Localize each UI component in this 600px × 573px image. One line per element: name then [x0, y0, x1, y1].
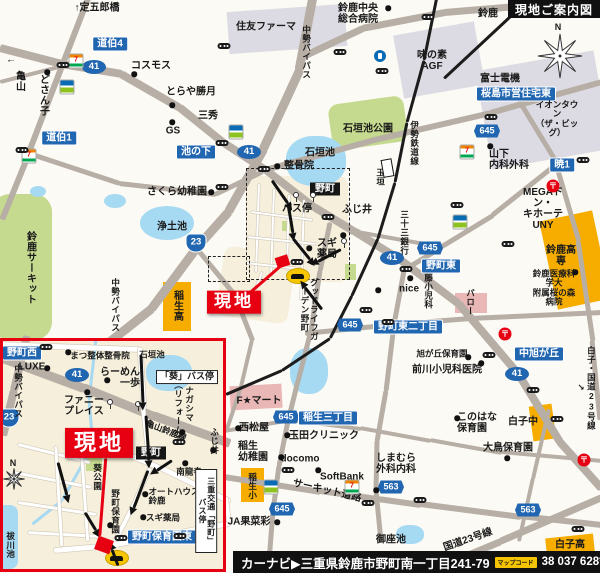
- poi-dot: [454, 415, 460, 421]
- site-guide-map: 現地ご案内図 カーナビ▶三重県鈴鹿市野町南一丁目241-79 マップコード 38…: [0, 0, 600, 573]
- map-label: 645: [474, 125, 500, 138]
- map-label: 亀山: [14, 71, 25, 92]
- map-label: 大鳥保育園: [483, 443, 533, 454]
- car-navi-address: カーナビ▶三重県鈴鹿市野町南一丁目241-79: [241, 553, 490, 572]
- traffic-signal-icon: [218, 43, 231, 49]
- map-label: 石垣池: [305, 148, 335, 159]
- traffic-signal-icon: [502, 241, 515, 247]
- traffic-signal-icon: [422, 14, 435, 20]
- traffic-signal-icon: [572, 526, 585, 532]
- mapcode-badge: マップコード: [495, 557, 537, 568]
- mapcode-value: 38 037 628*60: [542, 556, 600, 568]
- poi-dot: [274, 163, 280, 169]
- map-label: 563: [515, 504, 541, 517]
- road-segment: [259, 67, 304, 151]
- map-label: docomo: [281, 454, 320, 465]
- traffic-signal-icon: [216, 184, 229, 190]
- map-label: MEGAドン・ キホーテ UNY: [515, 187, 572, 231]
- road-segment: [470, 310, 600, 321]
- map-label: 41: [237, 145, 261, 159]
- poi-dot: [169, 102, 175, 108]
- bus-stop-icon: [341, 238, 347, 248]
- poi-dot: [278, 454, 284, 460]
- traffic-signal-icon: [57, 62, 70, 68]
- map-label: 池の下: [177, 146, 215, 159]
- poi-dot: [504, 455, 510, 461]
- poi-dot: [340, 232, 346, 238]
- map-label: 白子・国道23号線↘: [577, 342, 596, 434]
- map-label: 鈴鹿: [478, 9, 498, 20]
- traffic-signal-icon: [362, 500, 375, 506]
- map-label: 鈴鹿医療科学大 附属桜の森病院: [531, 269, 577, 306]
- traffic-signal-icon: [483, 352, 496, 358]
- map-label: 41: [82, 60, 106, 74]
- map-label: 645: [337, 319, 363, 332]
- road-segment: [22, 149, 121, 186]
- map-label: 稲生 幼稚園: [238, 441, 268, 463]
- traffic-signal-icon: [577, 157, 590, 163]
- map-label: さくら幼稚園: [147, 187, 207, 198]
- map-label: 鈴鹿中央 総合病院: [338, 3, 378, 25]
- map-label: とらや勝月: [166, 87, 216, 98]
- pond: [30, 186, 46, 197]
- map-label: 富士電機: [480, 74, 520, 85]
- seven-eleven-icon: 7: [460, 145, 475, 160]
- map-label: しまむら 外科内科: [376, 453, 416, 475]
- poi-dot: [478, 360, 484, 366]
- map-label: 伊勢鉄道線: [409, 121, 418, 166]
- traffic-signal-icon: [551, 416, 564, 422]
- traffic-signal-icon: [291, 259, 304, 265]
- traffic-signal-icon: [527, 387, 540, 393]
- map-label: 645: [269, 503, 295, 516]
- bus-stop-icon: [293, 192, 299, 202]
- lawson-icon: [374, 50, 386, 62]
- map-label: 整骨院: [284, 161, 314, 172]
- map-label: 暁1: [550, 159, 574, 172]
- road-segment: [360, 426, 432, 443]
- poi-dot: [274, 519, 280, 525]
- map-title: 現地ご案内図: [508, 0, 600, 18]
- map-label: 野町東: [422, 260, 460, 273]
- traffic-signal-icon: [16, 147, 29, 153]
- map-label: 道伯1: [42, 132, 76, 145]
- map-label: 645: [273, 411, 299, 424]
- map-label: 白子高: [555, 540, 585, 551]
- map-label: イオンタウン （ザ・ビッグ）: [536, 100, 579, 137]
- poi-dot: [487, 143, 493, 149]
- inset-coverage-outline: [208, 256, 250, 282]
- map-label: N: [555, 23, 562, 33]
- map-label: GS: [166, 126, 180, 137]
- map-label: nice: [399, 284, 419, 295]
- traffic-signal-icon: [451, 202, 464, 208]
- compass-rose-icon: [537, 33, 583, 79]
- map-label: 中旭が丘: [515, 348, 563, 361]
- map-label: ↑定五郎橋: [75, 3, 120, 14]
- map-label: 稲生高: [172, 290, 183, 322]
- poi-dot: [315, 467, 321, 473]
- poi-dot: [375, 287, 381, 293]
- map-label: ふじ井: [342, 205, 372, 216]
- map-label: 玉田クリニック: [289, 431, 359, 442]
- map-label: 中勢バイパス: [110, 278, 119, 332]
- tamagaki-station-marker: [381, 158, 395, 178]
- seven-eleven-icon: 7: [345, 480, 360, 495]
- familymart-icon: [60, 80, 75, 95]
- poi-dot: [44, 69, 50, 75]
- navi-address-bar: カーナビ▶三重県鈴鹿市野町南一丁目241-79 マップコード 38 037 62…: [233, 551, 600, 573]
- poi-dot: [465, 354, 471, 360]
- map-label: 中勢バイパス: [301, 25, 310, 79]
- map-label: どさん子: [38, 74, 49, 116]
- road-segment: [392, 270, 407, 325]
- map-label: JA果菜彩: [228, 517, 271, 528]
- map-label: 西松屋: [239, 423, 269, 434]
- traffic-signal-icon: [334, 49, 347, 55]
- seven-eleven-icon: 7: [69, 54, 84, 69]
- map-label: コスモス: [131, 61, 171, 72]
- traffic-signal-icon: [414, 497, 427, 503]
- traffic-signal-icon: [216, 140, 229, 146]
- traffic-signal-icon: [400, 266, 413, 272]
- traffic-signal-icon: [322, 214, 335, 220]
- traffic-signal-icon: [485, 114, 498, 120]
- poi-dot: [385, 5, 391, 11]
- map-label: このはな 保育園: [457, 412, 497, 434]
- bus-stop-icon: [310, 192, 316, 202]
- map-label: 旭が丘保育園: [416, 349, 467, 358]
- map-label: 鈴鹿サーキット: [25, 231, 36, 305]
- map-label: 23: [187, 235, 206, 252]
- traffic-signal-icon: [382, 319, 395, 325]
- post-office-icon: 〒: [578, 454, 591, 467]
- genchi-badge: 現地: [207, 291, 261, 314]
- lawson-mark: [378, 53, 382, 59]
- map-label: 石垣池公園: [343, 124, 393, 135]
- poi-dot: [208, 189, 214, 195]
- map-label: 41: [505, 367, 529, 381]
- poi-dot: [284, 432, 290, 438]
- map-label: 前川小児科医院: [412, 365, 482, 376]
- poi-dot: [407, 275, 413, 281]
- poi-dot: [572, 269, 578, 275]
- map-label: 白子中: [508, 417, 538, 428]
- map-label: 鈴鹿高専: [542, 245, 581, 267]
- traffic-signal-icon: [360, 307, 373, 313]
- map-label: 山下 内科外科: [489, 149, 529, 171]
- map-label: 道伯4: [93, 38, 127, 51]
- traffic-signal-icon: [376, 68, 389, 74]
- map-label: 御座池: [376, 535, 406, 546]
- poi-dot: [169, 119, 175, 125]
- map-label: 稲生小: [247, 473, 256, 500]
- map-label: 563: [378, 481, 404, 494]
- map-label: バロー: [465, 289, 474, 316]
- road-segment: [420, 501, 522, 520]
- familymart-icon: [229, 125, 244, 140]
- map-label: 浄土池: [157, 222, 187, 233]
- familymart-icon: [453, 215, 468, 230]
- traffic-signal-icon: [282, 467, 295, 473]
- map-label: ←: [6, 55, 16, 66]
- map-label: 645: [417, 242, 443, 255]
- poi-dot: [306, 245, 312, 251]
- inset-frame: [0, 338, 226, 572]
- ise-railway: [377, 182, 397, 239]
- map-label: 味の素 AGF: [417, 50, 447, 72]
- road-segment: [384, 324, 397, 392]
- traffic-signal-icon: [258, 166, 271, 172]
- map-label: 稲生三丁目: [299, 412, 357, 425]
- pond: [104, 194, 126, 208]
- map-label: 三秀: [198, 111, 218, 122]
- map-label: 三十三銀行: [399, 208, 408, 256]
- poi-dot: [373, 487, 379, 493]
- post-office-icon: 〒: [499, 328, 512, 341]
- familymart-icon: [264, 480, 279, 495]
- poi-dot: [235, 425, 241, 431]
- road-segment: [556, 438, 600, 491]
- poi-dot: [131, 71, 137, 77]
- map-label: F★マート: [236, 396, 281, 407]
- map-label: 住友ファーマ: [236, 22, 296, 33]
- post-office-icon: 〒: [547, 180, 560, 193]
